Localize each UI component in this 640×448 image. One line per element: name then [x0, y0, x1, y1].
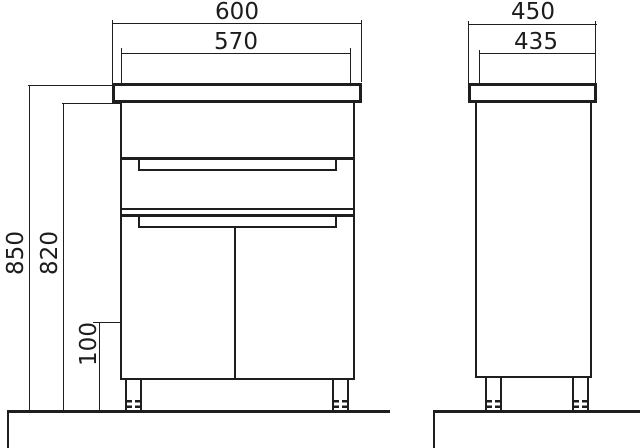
dimension-line — [112, 23, 362, 24]
extension-line — [121, 48, 122, 83]
adjustable-leg — [332, 380, 349, 411]
dimension-line — [468, 24, 597, 25]
dimension-line — [121, 53, 351, 54]
dimension-line — [99, 322, 100, 411]
door-handle-recess — [138, 217, 337, 228]
floor-line — [433, 410, 640, 413]
adjustable-leg — [572, 378, 589, 411]
overall-depth-dimension-label: 450 — [483, 0, 583, 24]
overall-height-dimension-label: 850 — [3, 218, 29, 288]
adjustable-leg — [125, 380, 142, 411]
dimension-line — [29, 85, 30, 411]
extension-line — [350, 48, 351, 83]
drawer-handle-recess — [138, 160, 337, 171]
cabinet-width-dimension-label: 570 — [186, 30, 286, 54]
countertop — [112, 83, 362, 103]
extension-line — [112, 20, 113, 83]
extension-line — [361, 20, 362, 82]
countertop-side — [468, 83, 597, 103]
cabinet-height-dimension-label: 820 — [37, 218, 63, 288]
dimension-line — [479, 53, 596, 54]
cabinet-body — [120, 100, 355, 380]
adjustable-leg — [485, 378, 502, 411]
overall-width-dimension-label: 600 — [187, 0, 287, 24]
extension-line — [93, 322, 122, 323]
technical-drawing: 600 570 850 820 100 — [0, 0, 640, 448]
cabinet-depth-dimension-label: 435 — [486, 30, 586, 54]
extension-line — [62, 103, 120, 104]
extension-line — [595, 21, 596, 83]
floor-line-end — [7, 410, 9, 448]
extension-line — [468, 21, 469, 83]
door-divider — [234, 228, 236, 380]
dimension-line — [63, 103, 64, 411]
extension-line — [28, 85, 112, 86]
extension-line — [479, 50, 480, 83]
drawer-edge-line — [120, 208, 355, 210]
floor-line-end — [433, 410, 435, 448]
floor-line — [7, 410, 390, 413]
cabinet-side-body — [475, 100, 592, 378]
